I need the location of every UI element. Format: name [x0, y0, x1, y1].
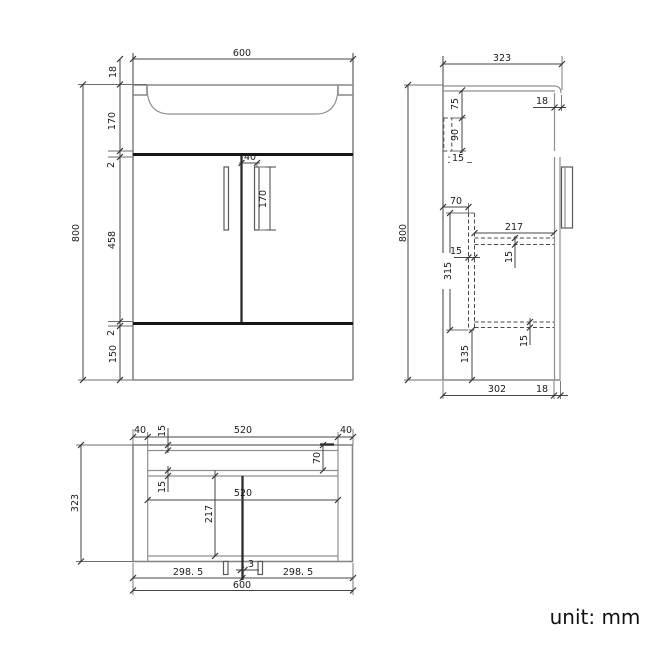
dim-plan-door-right: 298. 5	[283, 567, 313, 578]
dim-side-bracket-offset: 75	[450, 98, 461, 110]
unit-note: unit: mm	[550, 605, 641, 629]
dim-front-door-height: 458	[107, 231, 118, 249]
front-dimension-lines	[83, 59, 353, 380]
dim-side-plinth-height: 135	[460, 345, 471, 363]
dim-plan-front-rail-inset: 70	[312, 452, 323, 464]
dim-plan-side-right: 40	[340, 425, 352, 436]
technical-drawing-page: 600 18 170 2 458 2 150 800 40 170	[0, 0, 650, 650]
dim-side-shelf-thickness: 15	[504, 251, 515, 263]
dim-side-bracket-height: 90	[450, 129, 461, 141]
plan-view: 40 15 520 40 70 15 520 217 3 298. 5 298.…	[70, 425, 356, 595]
front-view: 600 18 170 2 458 2 150 800 40 170	[71, 48, 356, 383]
dim-plan-inner-width: 520	[234, 488, 252, 499]
dim-front-gap-bottom: 2	[106, 330, 117, 336]
dim-plan-inner-depth: 217	[204, 505, 215, 523]
dim-side-divider-height: 315	[443, 262, 454, 280]
dim-plan-door-left: 298. 5	[173, 567, 203, 578]
dim-side-bottom-thickness: 15	[519, 335, 530, 347]
dim-plan-rail-thickness: 15	[157, 481, 168, 493]
dim-side-body-depth: 302	[488, 384, 506, 395]
dim-front-handle-length: 170	[258, 190, 269, 208]
dim-plan-depth: 323	[70, 494, 81, 512]
side-bottom-panel-hidden	[475, 322, 555, 328]
dim-side-depth: 323	[493, 53, 511, 64]
dim-front-handle-offset: 40	[244, 152, 256, 163]
dim-front-height: 800	[71, 224, 82, 242]
dim-plan-width: 600	[233, 580, 251, 591]
plan-left-handle	[224, 562, 229, 575]
dim-front-basin: 170	[107, 112, 118, 130]
dim-plan-side-left: 40	[134, 425, 146, 436]
dim-plan-back-thickness: 15	[157, 425, 168, 437]
dim-plan-inner-width-top: 520	[234, 425, 252, 436]
dim-front-gap-top: 2	[106, 162, 117, 168]
dim-plan-door-gap: 3	[248, 559, 254, 570]
front-cabinet-outline	[133, 53, 353, 380]
vanity-dimension-drawing: 600 18 170 2 458 2 150 800 40 170	[0, 0, 650, 650]
side-handle-profile	[562, 167, 573, 228]
dim-side-bracket-below: 15	[452, 153, 464, 164]
dim-front-rim: 18	[108, 66, 119, 78]
front-basin-bowl	[147, 85, 338, 114]
plan-right-handle	[258, 562, 263, 575]
dim-front-width: 600	[233, 48, 251, 59]
dim-side-shelf-depth: 217	[505, 222, 523, 233]
dim-front-plinth: 150	[108, 345, 119, 363]
side-dimension-lines	[408, 64, 568, 396]
side-dimension-ticks	[405, 61, 565, 399]
dim-side-counter-thickness: 18	[536, 96, 548, 107]
side-divider-hidden	[469, 213, 475, 330]
dim-side-height: 800	[398, 224, 409, 242]
dim-side-divider-thickness: 15	[450, 246, 462, 257]
dim-side-divider-inset: 70	[450, 196, 462, 207]
front-dimension-ticks	[80, 56, 356, 383]
front-left-door-handle	[224, 167, 229, 230]
side-view: 323 800 18 75 90 15 70 315 15 217 15 15 …	[398, 53, 573, 399]
dim-side-door-thickness: 18	[536, 384, 548, 395]
side-divider-caps	[469, 213, 475, 330]
